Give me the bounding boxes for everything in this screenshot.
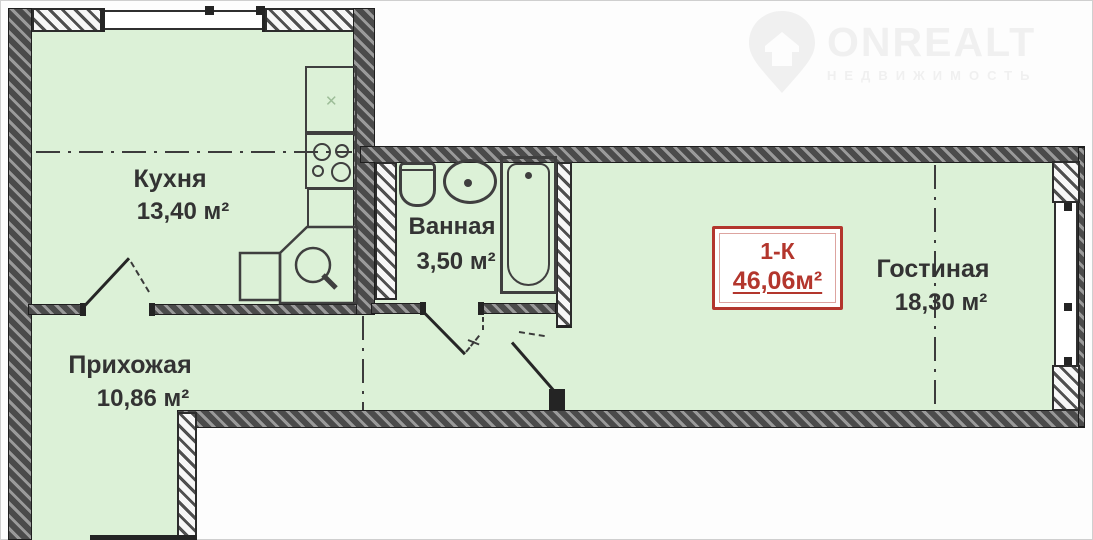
bathtub-drain-dot — [525, 172, 532, 179]
pillar-right-bottom — [1052, 365, 1080, 411]
living-door-hinge-post — [549, 389, 565, 411]
living-area: 18,30 м² — [895, 291, 987, 315]
logo-brand-text: ONREALT — [827, 22, 1037, 63]
kitchen-cabinet-icon — [307, 188, 357, 228]
logo-tagline-text: НЕДВИЖИМОСТЬ — [827, 69, 1037, 82]
window-mullion — [1064, 203, 1072, 211]
wall-left — [8, 8, 32, 540]
kitchen-label: Кухня — [133, 167, 206, 192]
door-post — [478, 302, 484, 315]
kitchen-window — [103, 10, 265, 30]
toilet-tank-line — [401, 169, 434, 171]
bathroom-door-arc — [482, 317, 484, 330]
counter-x-mark: ✕ — [325, 92, 338, 110]
bathtub-inner — [507, 163, 550, 286]
basin-faucet-dot — [464, 179, 472, 187]
living-room-window — [1054, 203, 1078, 365]
axis-line-living — [934, 165, 936, 410]
bathroom-label: Ванная — [408, 215, 495, 239]
kitchen-counter-icon: ✕ — [305, 66, 357, 133]
unit-info-box: 1-К 46,06м² — [712, 226, 843, 310]
window-mullion — [1064, 357, 1072, 365]
wall-bathroom-bottom-right — [478, 303, 556, 314]
wall-hallway-lower-right — [177, 412, 197, 540]
unit-type-label: 1-К — [760, 240, 795, 263]
wall-bottom-edge — [90, 535, 197, 540]
axis-line-middle — [362, 316, 364, 410]
kitchen-corner-sink-icon — [236, 223, 360, 307]
window-post — [100, 8, 105, 32]
living-label: Гостиная — [877, 257, 990, 282]
floor-plan-canvas: ✕ Кухня 13,40 м² Ванная 3,50 м² Гостиная… — [0, 0, 1093, 540]
hallway-lower-floor — [28, 415, 178, 540]
wall-top-right-block — [265, 8, 355, 32]
window-mullion — [256, 6, 265, 15]
door-post — [149, 303, 155, 316]
window-mullion — [1064, 303, 1072, 311]
bathroom-area: 3,50 м² — [416, 250, 495, 274]
onrealt-watermark: ONREALT НЕДВИЖИМОСТЬ — [745, 8, 1090, 104]
window-mullion — [205, 6, 214, 15]
wall-bathroom-left — [375, 162, 397, 300]
wall-top-left-block — [32, 8, 103, 32]
unit-total-area: 46,06м² — [733, 267, 822, 296]
stove-icon — [305, 133, 357, 189]
kitchen-area: 13,40 м² — [137, 200, 229, 224]
wall-kitchen-bottom-left — [28, 304, 85, 315]
hallway-label: Прихожая — [68, 353, 191, 378]
wall-bathroom-right — [556, 162, 572, 328]
pillar-right-top — [1052, 161, 1080, 203]
wall-bathroom-bottom-left — [371, 303, 425, 314]
location-pin-house-icon — [745, 8, 819, 98]
wall-bottom-main — [177, 410, 1085, 428]
hallway-area: 10,86 м² — [97, 387, 189, 411]
